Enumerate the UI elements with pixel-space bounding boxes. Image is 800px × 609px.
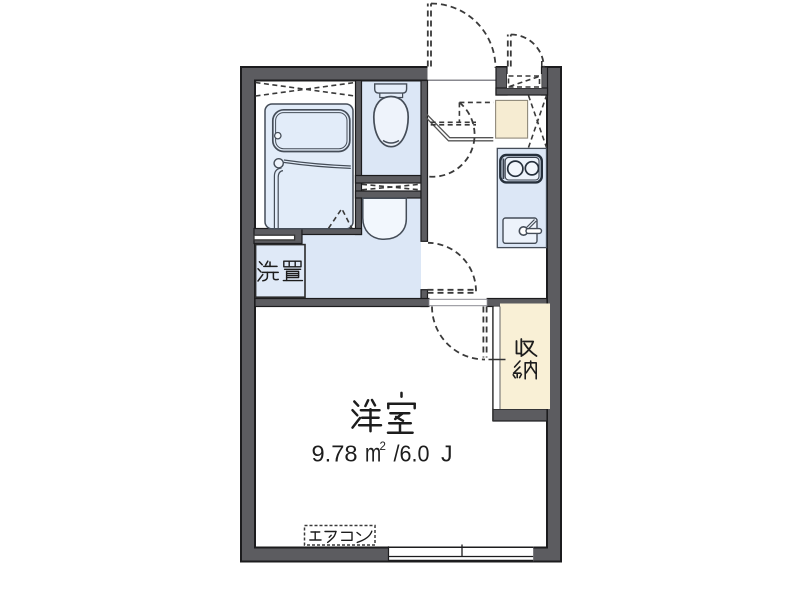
svg-text:9.78: 9.78 — [312, 441, 358, 467]
svg-text:2: 2 — [380, 441, 386, 453]
svg-text:/6.0: /6.0 — [394, 441, 430, 467]
svg-text:J: J — [441, 441, 453, 467]
